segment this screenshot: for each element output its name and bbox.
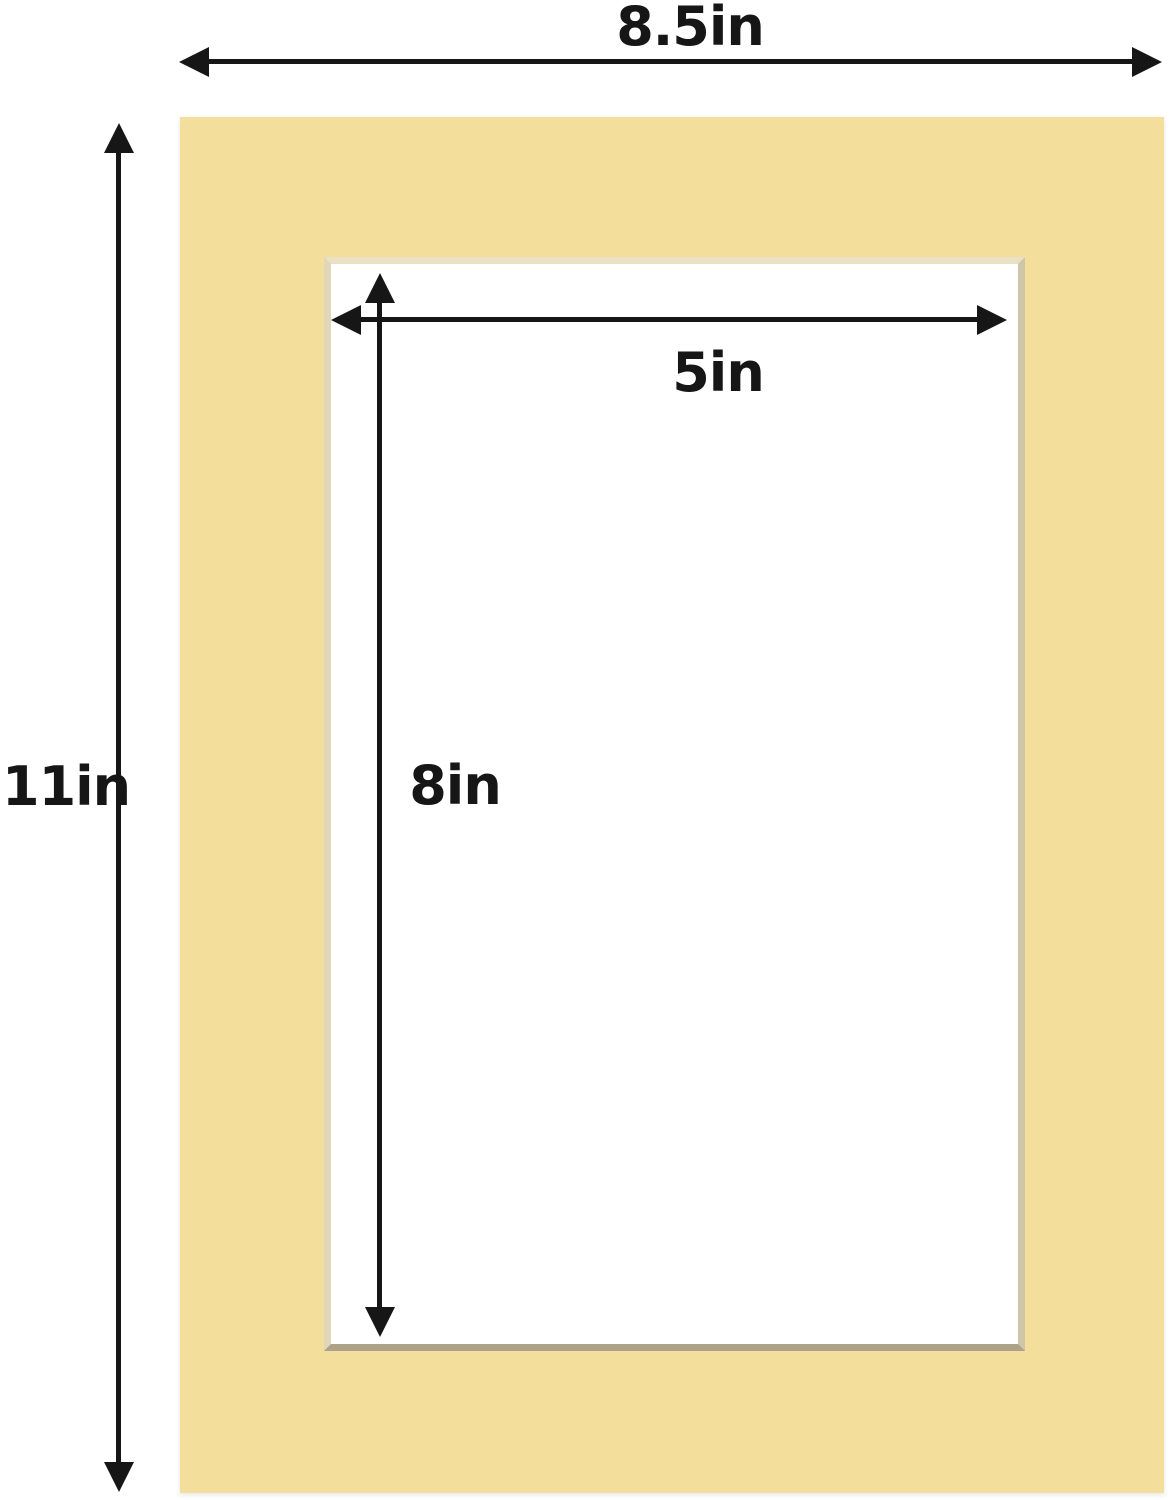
outer-width-label: 8.5in xyxy=(616,0,764,54)
outer-width-dimension-arrow xyxy=(207,59,1134,64)
outer-height-label: 11in xyxy=(2,760,130,814)
opening-height-label: 8in xyxy=(409,759,501,813)
diagram-canvas: 8.5in 11in 5in 8in xyxy=(0,0,1170,1500)
opening-width-label: 5in xyxy=(672,346,764,400)
mat-board xyxy=(180,117,1164,1493)
opening-height-dimension-arrow xyxy=(377,301,382,1309)
opening-width-dimension-arrow xyxy=(359,317,979,322)
